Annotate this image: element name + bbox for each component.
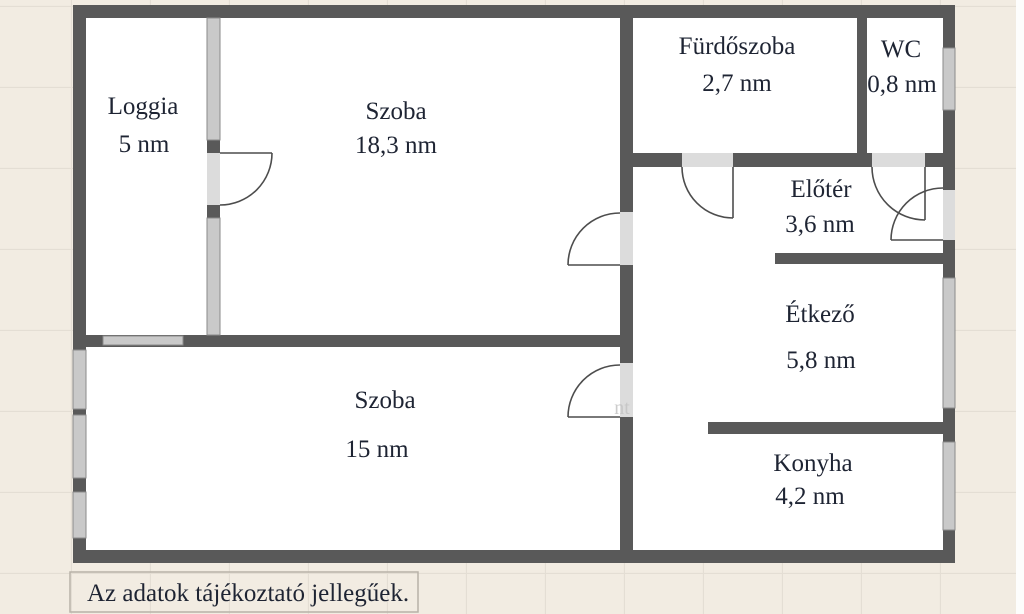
window-konyha [943,442,955,530]
room-wc-area: 0,8 nm [867,71,937,98]
floor-plan-page: Loggia 5 nm Szoba 18,3 nm Fürdőszoba 2,7… [0,0,1024,614]
wall-outer-top [73,5,955,18]
right-edge-strip [1016,0,1024,614]
room-etkezo-area: 5,8 nm [786,347,856,374]
room-konyha-name: Konyha [773,450,852,477]
room-szoba1-name: Szoba [365,98,426,125]
room-szoba2-name: Szoba [354,387,415,414]
room-eloter-name: Előtér [790,176,852,203]
watermark-text: nt [614,397,630,419]
wall-furdoszoba-wc [857,18,867,167]
window-loggia-bottom [103,336,183,345]
room-wc-name: WC [881,36,921,63]
wall-outer-bottom [73,550,955,563]
door-opening-furdoszoba [682,153,733,167]
wall-outer-left [73,5,86,563]
door-opening-entry [943,190,955,240]
room-loggia-name: Loggia [108,93,179,120]
window-wc [943,48,955,110]
window-loggia-upper [207,18,220,140]
window-szoba2-left-2 [73,415,86,478]
room-szoba2-area: 15 nm [345,436,409,463]
window-etkezo [943,278,955,408]
floor-plan: Loggia 5 nm Szoba 18,3 nm Fürdőszoba 2,7… [0,0,1024,614]
disclaimer-text: Az adatok tájékoztató jellegűek. [87,580,409,607]
door-opening-wc [872,153,925,167]
door-opening-szoba1 [620,212,633,265]
room-etkezo-name: Étkező [785,300,854,328]
room-eloter-area: 3,6 nm [785,211,855,238]
room-furdoszoba-area: 2,7 nm [702,70,772,97]
apartment-floor [73,5,955,563]
room-szoba1-area: 18,3 nm [355,132,438,159]
door-opening-loggia [207,153,220,205]
window-loggia-lower [207,218,220,335]
wall-etkezo-konyha [708,422,943,434]
room-furdoszoba-name: Fürdőszoba [679,33,796,60]
window-szoba2-left-1 [73,350,86,409]
wall-central [620,5,633,563]
wall-eloter-etkezo [775,253,943,264]
room-konyha-area: 4,2 nm [775,483,845,510]
window-szoba2-left-3 [73,492,86,538]
room-loggia-area: 5 nm [119,131,170,158]
